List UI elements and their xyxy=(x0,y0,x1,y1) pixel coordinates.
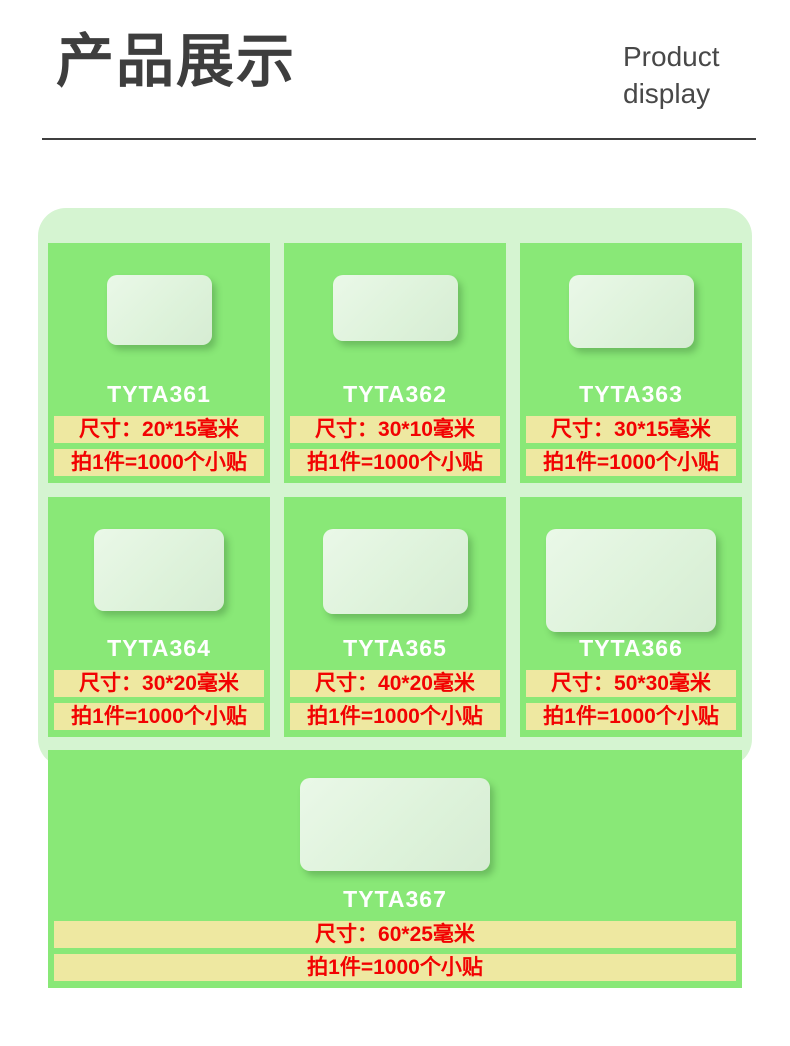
size-label: 尺寸：40*20毫米 xyxy=(290,670,500,697)
sticker-image xyxy=(300,778,490,871)
qty-label: 拍1件=1000个小贴 xyxy=(290,449,500,476)
size-label: 尺寸：30*10毫米 xyxy=(290,416,500,443)
product-card: TYTA364 尺寸：30*20毫米 拍1件=1000个小贴 xyxy=(48,497,270,737)
qty-label: 拍1件=1000个小贴 xyxy=(54,703,264,730)
product-code: TYTA365 xyxy=(343,635,447,661)
qty-label: 拍1件=1000个小贴 xyxy=(526,703,736,730)
size-label: 尺寸：30*20毫米 xyxy=(54,670,264,697)
product-card: TYTA363 尺寸：30*15毫米 拍1件=1000个小贴 xyxy=(520,243,742,483)
sticker-image xyxy=(107,275,212,345)
products-grid: TYTA361 尺寸：20*15毫米 拍1件=1000个小贴 TYTA362 尺… xyxy=(48,243,742,737)
qty-label: 拍1件=1000个小贴 xyxy=(54,954,736,981)
page-title: 产品展示 xyxy=(56,30,296,94)
product-card: TYTA365 尺寸：40*20毫米 拍1件=1000个小贴 xyxy=(284,497,506,737)
sticker-image xyxy=(546,529,716,632)
qty-label: 拍1件=1000个小贴 xyxy=(526,449,736,476)
header-divider xyxy=(42,138,756,140)
sticker-image xyxy=(94,529,224,611)
product-card: TYTA362 尺寸：30*10毫米 拍1件=1000个小贴 xyxy=(284,243,506,483)
sticker-image xyxy=(333,275,458,341)
page-subtitle-en: Product display xyxy=(623,38,720,112)
size-label: 尺寸：50*30毫米 xyxy=(526,670,736,697)
product-code: TYTA363 xyxy=(579,381,683,407)
qty-label: 拍1件=1000个小贴 xyxy=(290,703,500,730)
qty-label: 拍1件=1000个小贴 xyxy=(54,449,264,476)
products-panel: TYTA361 尺寸：20*15毫米 拍1件=1000个小贴 TYTA362 尺… xyxy=(38,208,752,767)
product-code: TYTA362 xyxy=(343,381,447,407)
product-code: TYTA364 xyxy=(107,635,211,661)
size-label: 尺寸：30*15毫米 xyxy=(526,416,736,443)
size-label: 尺寸：60*25毫米 xyxy=(54,921,736,948)
product-card: TYTA361 尺寸：20*15毫米 拍1件=1000个小贴 xyxy=(48,243,270,483)
product-card-wide: TYTA367 尺寸：60*25毫米 拍1件=1000个小贴 xyxy=(48,750,742,988)
product-code: TYTA361 xyxy=(107,381,211,407)
product-card: TYTA366 尺寸：50*30毫米 拍1件=1000个小贴 xyxy=(520,497,742,737)
sticker-image xyxy=(569,275,694,348)
size-label: 尺寸：20*15毫米 xyxy=(54,416,264,443)
product-code: TYTA366 xyxy=(579,635,683,661)
product-code: TYTA367 xyxy=(343,886,447,912)
sticker-image xyxy=(323,529,468,614)
